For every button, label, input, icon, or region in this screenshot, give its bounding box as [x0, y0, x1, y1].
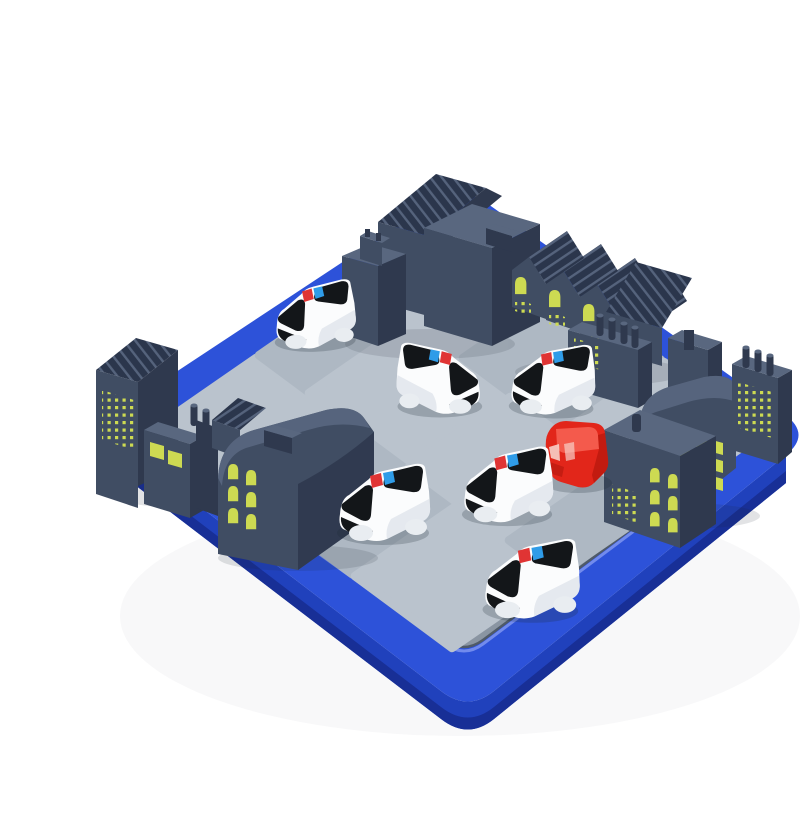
roof-pipe [767, 354, 774, 377]
chimney-notch [376, 233, 381, 241]
flat-building-front [424, 228, 492, 346]
roof-pipe [597, 314, 604, 337]
building-right-center [604, 410, 716, 548]
dots-tower-side [778, 370, 792, 464]
roof-pipe [755, 350, 762, 373]
chimney-notch [365, 229, 370, 237]
product-photo: Road-block logic puzzle board game: blue… [40, 16, 800, 816]
roof-pipe [609, 318, 616, 341]
factory-chimney [632, 414, 641, 432]
red-getaway-car[interactable] [544, 421, 612, 493]
chimney-block-side [378, 254, 406, 346]
window-grid [102, 390, 134, 450]
roof-pipe [743, 346, 750, 369]
notch-ridge [684, 330, 694, 350]
board-photo [40, 16, 800, 816]
roof-pipe [632, 326, 639, 349]
roof-pipe [621, 322, 628, 345]
